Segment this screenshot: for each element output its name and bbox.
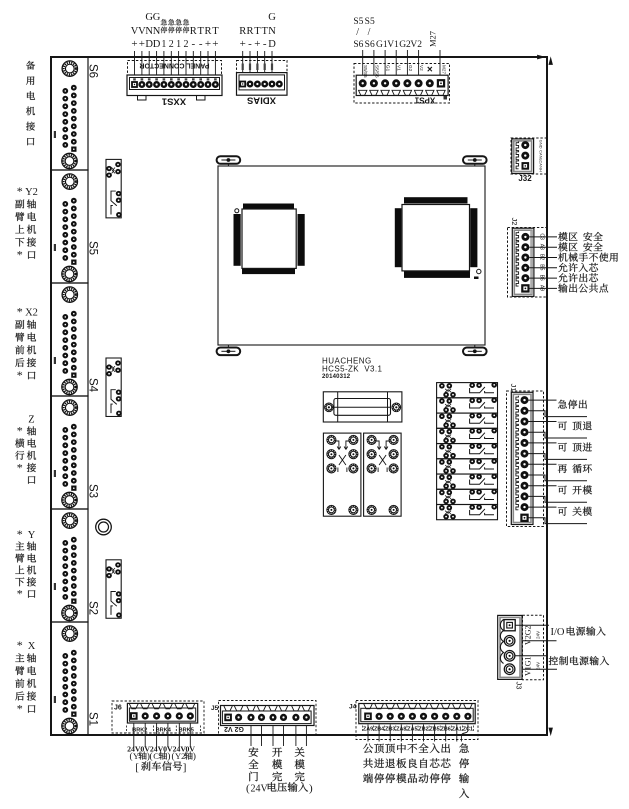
svg-text:(: (: [150, 751, 153, 762]
svg-text:*: *: [17, 638, 23, 652]
svg-text:*: *: [17, 702, 23, 716]
svg-text:]: ]: [183, 761, 187, 773]
svg-text:V2G2: V2G2: [524, 625, 533, 645]
svg-text:G1: G1: [376, 40, 388, 50]
svg-text:-: -: [191, 38, 195, 50]
svg-text:XPS1: XPS1: [414, 96, 435, 105]
svg-text:2: 2: [169, 39, 174, 50]
svg-text:+: +: [205, 38, 211, 50]
svg-text:/: /: [368, 27, 371, 38]
svg-text:*: *: [17, 460, 23, 474]
svg-text:*: *: [17, 527, 23, 541]
svg-text:R: R: [204, 26, 211, 37]
svg-text:S5: S5: [353, 17, 363, 27]
svg-text:-: -: [263, 38, 267, 50]
svg-text:J5: J5: [211, 705, 219, 712]
svg-text:R: R: [246, 26, 253, 37]
svg-text:1: 1: [176, 39, 181, 50]
svg-text:T: T: [212, 26, 219, 37]
svg-text:20140312: 20140312: [322, 374, 351, 380]
svg-text:V1: V1: [397, 65, 402, 71]
svg-text:S1: S1: [87, 712, 99, 726]
svg-text:D: D: [268, 39, 276, 50]
svg-text:J2: J2: [510, 218, 519, 226]
svg-text:S5/S6: S5/S6: [363, 65, 368, 78]
svg-text:PANEL CONNECTOR: PANEL CONNECTOR: [139, 62, 209, 69]
svg-text:C: C: [153, 751, 159, 761]
svg-text:T: T: [197, 26, 204, 37]
svg-text:M27: M27: [428, 31, 438, 47]
svg-text:G2: G2: [408, 65, 413, 72]
svg-text:1: 1: [161, 39, 166, 50]
svg-text:S6: S6: [365, 40, 375, 50]
svg-text:XDIAS: XDIAS: [247, 95, 276, 106]
svg-text:2: 2: [184, 39, 189, 50]
svg-text:[: [: [135, 761, 139, 773]
svg-text:Y2: Y2: [175, 751, 185, 761]
svg-text:*: *: [17, 305, 23, 319]
svg-text:*: *: [17, 587, 23, 601]
svg-text:M27: M27: [442, 65, 447, 74]
svg-text:(: (: [246, 782, 250, 794]
svg-text:S5/S6: S5/S6: [374, 65, 379, 78]
svg-text:J4: J4: [349, 704, 357, 711]
svg-text:Y2: Y2: [25, 187, 38, 198]
svg-text:+: +: [240, 38, 246, 50]
svg-text:+: +: [131, 38, 137, 50]
svg-text:S6: S6: [353, 40, 363, 50]
svg-text:GND: GND: [539, 140, 544, 149]
svg-text:S2: S2: [87, 601, 99, 615]
svg-text:D: D: [153, 39, 161, 50]
svg-text:R: R: [190, 26, 197, 37]
svg-text:24V: 24V: [536, 630, 541, 639]
svg-text:/: /: [356, 27, 359, 38]
svg-text:G: G: [268, 12, 276, 23]
svg-text:*: *: [17, 184, 23, 198]
svg-text:+: +: [254, 38, 260, 50]
svg-text:V2: V2: [410, 40, 422, 50]
svg-text:S3: S3: [87, 484, 99, 498]
svg-text:G: G: [153, 12, 161, 23]
svg-text:24V: 24V: [536, 661, 541, 670]
svg-text:N: N: [153, 26, 161, 37]
svg-text:J3: J3: [515, 682, 524, 690]
svg-text:CANH: CANH: [539, 160, 544, 171]
svg-text:V1: V1: [387, 40, 399, 50]
svg-text:): ): [167, 751, 170, 762]
svg-text:S4: S4: [87, 378, 99, 393]
svg-text:*: *: [17, 368, 23, 382]
svg-text:X: X: [28, 641, 36, 652]
svg-text:G2: G2: [399, 40, 411, 50]
svg-text:*: *: [17, 248, 23, 262]
svg-text:V2: V2: [419, 65, 424, 71]
svg-text:-: -: [199, 38, 203, 50]
svg-text:×: ×: [427, 65, 433, 76]
svg-text:+: +: [212, 38, 218, 50]
svg-text:T: T: [254, 26, 261, 37]
svg-text:BRK5: BRK5: [179, 727, 194, 733]
svg-text:X2: X2: [25, 308, 38, 319]
svg-text:XXS1: XXS1: [161, 96, 186, 107]
svg-text:): ): [193, 751, 196, 762]
svg-text:24V: 24V: [251, 783, 269, 794]
svg-text:J32: J32: [518, 174, 532, 183]
svg-text:S5: S5: [365, 17, 375, 27]
svg-text:*: *: [17, 424, 23, 438]
svg-text:+: +: [139, 38, 145, 50]
svg-text:R: R: [239, 26, 246, 37]
svg-text:S5: S5: [87, 241, 99, 255]
svg-text:): ): [309, 782, 313, 794]
svg-text:S6: S6: [87, 64, 99, 78]
svg-text:J1: J1: [509, 384, 518, 392]
svg-text:Z: Z: [28, 415, 34, 426]
svg-text:J6: J6: [114, 705, 122, 712]
svg-text:Y: Y: [133, 751, 139, 761]
svg-text:G2 V2: G2 V2: [224, 725, 244, 732]
svg-text:G1: G1: [386, 65, 391, 72]
svg-text:I/O: I/O: [551, 627, 565, 638]
svg-text:HCS5-ZK V3.1: HCS5-ZK V3.1: [322, 365, 382, 374]
svg-text:-: -: [248, 38, 252, 50]
svg-text:V1G1: V1G1: [524, 656, 533, 676]
svg-text:N: N: [268, 26, 276, 37]
svg-text:BRK4: BRK4: [156, 727, 172, 733]
svg-text:Y: Y: [28, 530, 36, 541]
